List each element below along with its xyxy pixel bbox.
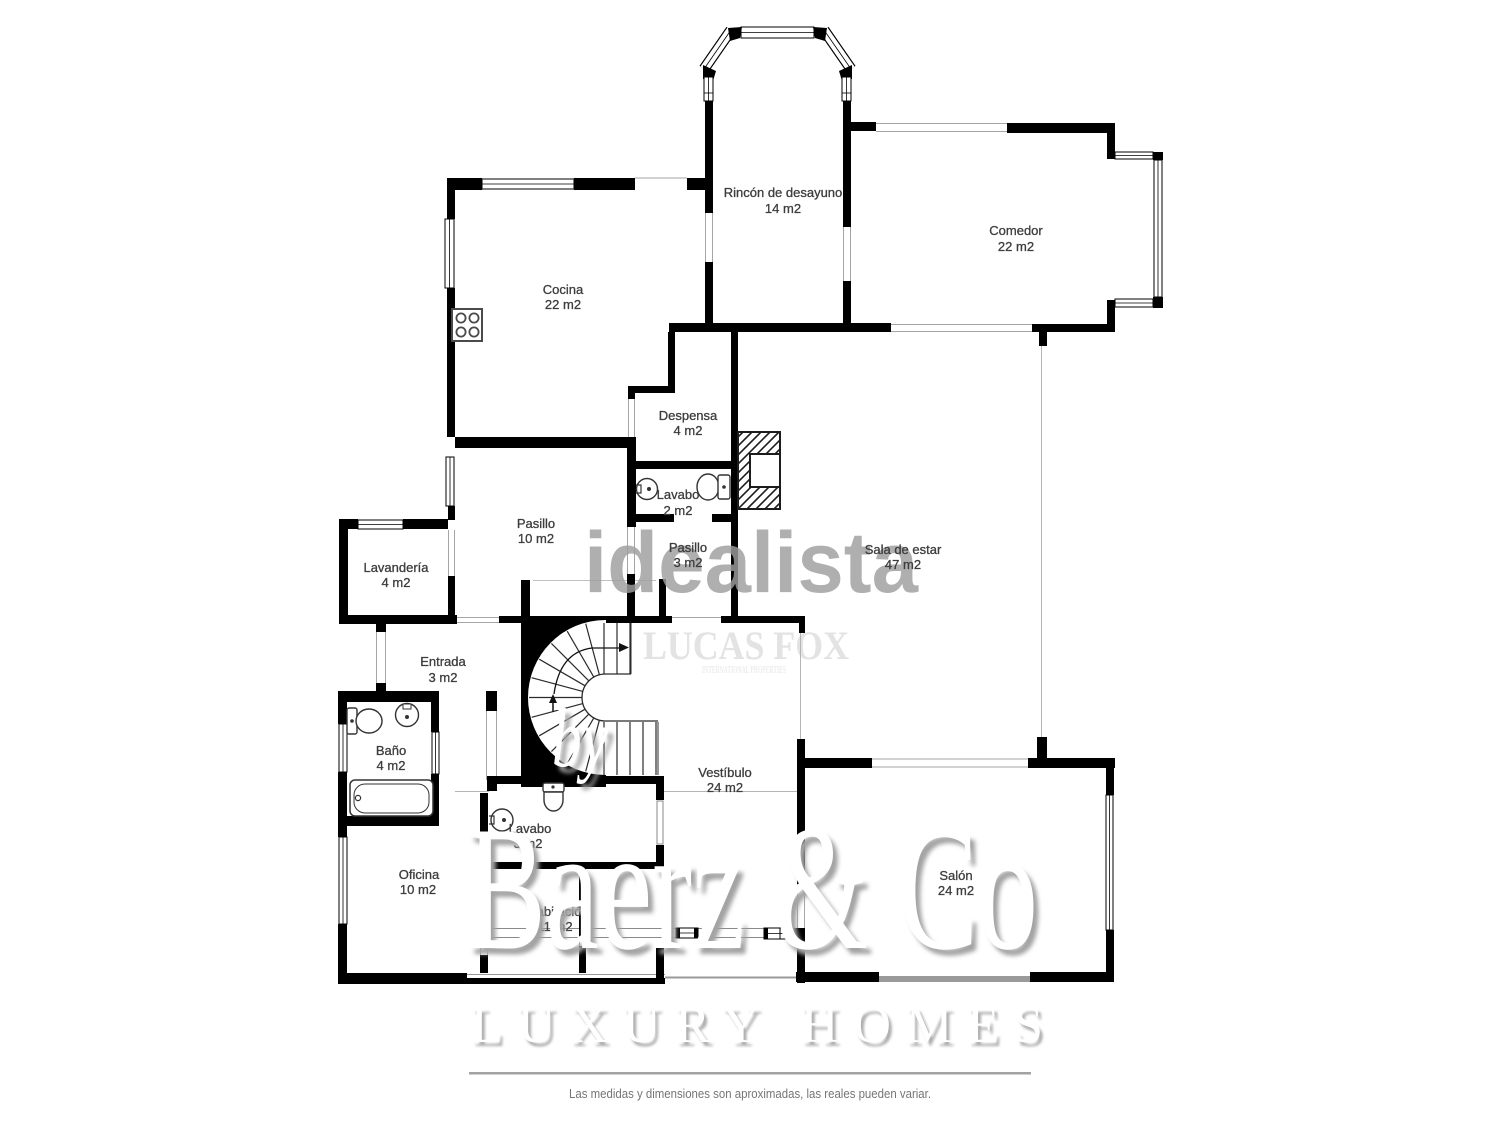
- svg-text:LUCAS FOX: LUCAS FOX: [643, 623, 849, 668]
- svg-text:4 m2: 4 m2: [382, 575, 411, 590]
- svg-text:22 m2: 22 m2: [998, 239, 1034, 254]
- svg-text:4 m2: 4 m2: [377, 758, 406, 773]
- svg-text:by: by: [552, 692, 608, 785]
- svg-text:Pasillo: Pasillo: [669, 540, 707, 555]
- svg-text:Despensa: Despensa: [659, 408, 718, 423]
- svg-text:10 m2: 10 m2: [400, 882, 436, 897]
- svg-text:Oficina: Oficina: [399, 867, 440, 882]
- svg-text:10 m2: 10 m2: [518, 531, 554, 546]
- svg-text:3 m2: 3 m2: [429, 670, 458, 685]
- svg-text:Rincón de desayuno: Rincón de desayuno: [724, 185, 843, 200]
- svg-text:LUXURY HOMES: LUXURY HOMES: [471, 997, 1058, 1054]
- svg-text:Lavandería: Lavandería: [363, 560, 429, 575]
- svg-text:Vestíbulo: Vestíbulo: [698, 765, 752, 780]
- svg-text:Entrada: Entrada: [420, 654, 466, 669]
- svg-text:Baño: Baño: [376, 743, 406, 758]
- svg-text:Lavabo: Lavabo: [657, 487, 700, 502]
- svg-text:Las medidas y dimensiones son: Las medidas y dimensiones son aproximada…: [569, 1086, 931, 1101]
- svg-text:INTERNATIONAL PROPERTIES: INTERNATIONAL PROPERTIES: [702, 665, 786, 676]
- svg-text:14 m2: 14 m2: [765, 201, 801, 216]
- svg-text:3 m2: 3 m2: [674, 555, 703, 570]
- svg-text:4 m2: 4 m2: [674, 423, 703, 438]
- svg-text:Sala de estar: Sala de estar: [865, 542, 942, 557]
- svg-text:47 m2: 47 m2: [885, 557, 921, 572]
- svg-text:Pasillo: Pasillo: [517, 516, 555, 531]
- svg-text:22 m2: 22 m2: [545, 297, 581, 312]
- svg-text:Cocina: Cocina: [543, 282, 584, 297]
- svg-text:Baerz & Co: Baerz & Co: [466, 789, 1038, 987]
- svg-text:idealista: idealista: [584, 515, 919, 611]
- svg-text:2 m2: 2 m2: [664, 503, 693, 518]
- svg-text:Comedor: Comedor: [989, 223, 1043, 238]
